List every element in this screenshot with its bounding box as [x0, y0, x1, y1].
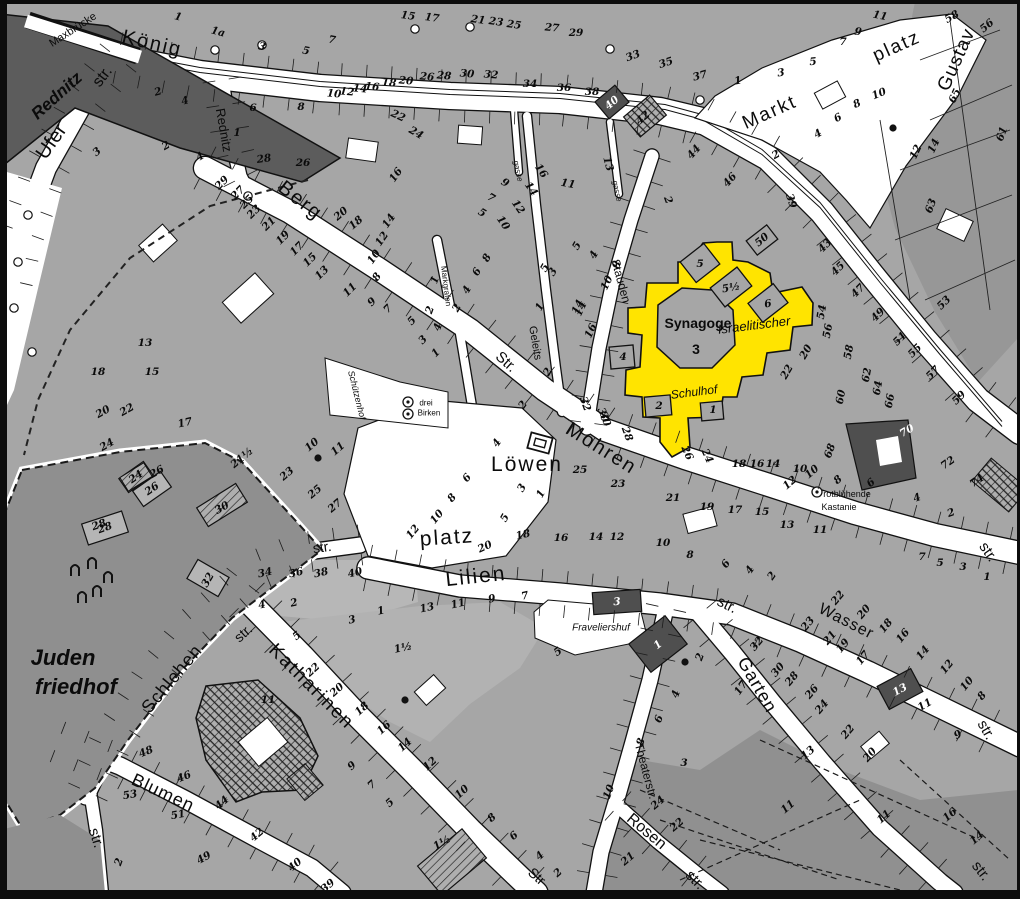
well-dot: [314, 454, 321, 461]
boundary-stone-icon: [696, 96, 704, 104]
city-map: MaxbrückeKönigstr.UferRednitzBergStr.Moh…: [0, 0, 1020, 899]
courtyard: [876, 436, 902, 466]
boundary-stone-icon: [24, 211, 32, 219]
tree-icon-dot: [406, 400, 409, 403]
building: [700, 401, 723, 421]
boundary-stone-icon: [211, 46, 219, 54]
boundary-stone-icon: [10, 304, 18, 312]
well-dot: [401, 696, 408, 703]
building: [644, 395, 672, 417]
boundary-stone-icon: [606, 45, 614, 53]
well-dot: [889, 124, 896, 131]
dark-building-3: [592, 589, 641, 614]
courtyard: [346, 138, 378, 162]
map-border-top: [0, 0, 1020, 4]
map-border-bottom: [0, 890, 1020, 899]
boundary-stone-icon: [28, 348, 36, 356]
boundary-stone-icon: [244, 192, 252, 200]
tree-icon-dot: [406, 412, 409, 415]
boundary-stone-icon: [411, 25, 419, 33]
boundary-stone-icon: [258, 41, 266, 49]
building: [609, 345, 635, 369]
map-canvas: [0, 0, 1020, 899]
tree-icon-dot: [815, 490, 818, 493]
boundary-stone-icon: [14, 258, 22, 266]
courtyard: [457, 125, 482, 145]
well-dot: [681, 658, 688, 665]
map-border-left: [0, 0, 7, 899]
boundary-stone-icon: [466, 23, 474, 31]
